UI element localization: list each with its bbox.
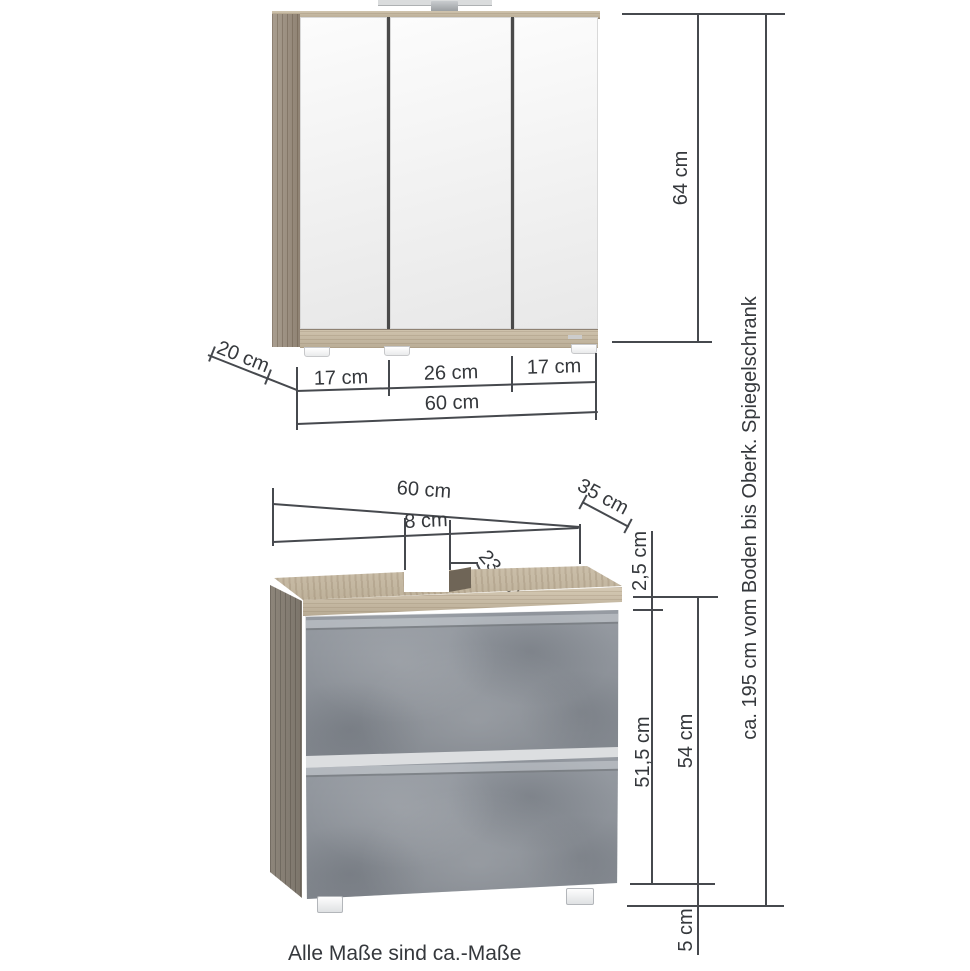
mirror-cabinet-glide-left	[304, 347, 330, 357]
dim-door-right-label: 17 cm	[519, 355, 590, 379]
vanity-drawer-top	[306, 610, 618, 756]
dim-tick-doors-left	[296, 367, 298, 430]
footnote: Alle Maße sind ca.-Maße	[288, 943, 521, 965]
dim-mirror-width-label: 60 cm	[417, 391, 488, 415]
mirror-cabinet-side-panel	[272, 14, 300, 347]
dimension-diagram: 64 cm ca. 195 cm vom Boden bis Oberk. Sp…	[0, 0, 970, 971]
dim-tick-mirror-bottom	[612, 341, 712, 343]
dim-vanity-width-label: 60 cm	[388, 477, 459, 504]
dim-tick-top	[622, 13, 785, 15]
vanity-foot-left	[317, 896, 343, 913]
dim-tick-vanity-width-right	[579, 524, 581, 564]
dim-cutout-width-label: 8 cm	[391, 508, 462, 533]
dim-tick-cutout-depth	[450, 562, 478, 564]
dim-vanity-height-label: 54 cm	[675, 706, 697, 776]
dim-tick-doors-right	[595, 353, 597, 420]
dim-door-left-label: 17 cm	[306, 366, 377, 390]
mirror-cabinet-front	[300, 17, 598, 347]
dim-tick-countertop-top	[633, 596, 718, 598]
dim-tick-countertop-bottom	[633, 609, 663, 611]
dim-vanity-depth-label: 35 cm	[567, 471, 639, 523]
drawer-top-handle-groove	[300, 614, 625, 631]
mirror-cabinet-glide-right	[571, 344, 597, 354]
dim-mirror-depth-label: 20 cm	[206, 334, 279, 380]
mirror-cabinet-glide-middle	[384, 346, 410, 356]
mirror-door-right	[514, 17, 598, 329]
mirror-door-left	[300, 17, 387, 329]
dim-tick-doors-m1	[388, 360, 390, 396]
mirror-cabinet-bottom-band	[300, 329, 598, 348]
dim-total-height-label: ca. 195 cm vom Boden bis Oberk. Spiegels…	[739, 248, 761, 788]
dim-mirror-height-label: 64 cm	[670, 143, 692, 213]
dim-line-total-height	[765, 13, 767, 906]
dim-tick-body-bottom	[630, 883, 715, 885]
dim-top-thickness-label: 2,5 cm	[629, 526, 651, 596]
countertop-cutout-wall	[449, 567, 471, 592]
vanity-side-panel	[270, 585, 302, 898]
vanity-drawer-bottom	[306, 757, 618, 899]
dim-feet-height-label: 5 cm	[675, 895, 697, 965]
dim-line-mirror-height	[697, 13, 699, 343]
mirror-door-middle	[390, 17, 511, 329]
dim-tick-doors-m2	[511, 356, 513, 392]
dim-line-top-thickness	[651, 531, 653, 611]
brand-mark	[568, 335, 582, 339]
dim-line-vanity-height	[697, 597, 699, 955]
floor-line	[627, 905, 784, 907]
dim-door-middle-label: 26 cm	[416, 361, 487, 385]
dim-tick-vanity-width-left	[272, 488, 274, 546]
dim-body-height-label: 51,5 cm	[632, 707, 654, 797]
vanity-foot-right	[566, 888, 594, 905]
